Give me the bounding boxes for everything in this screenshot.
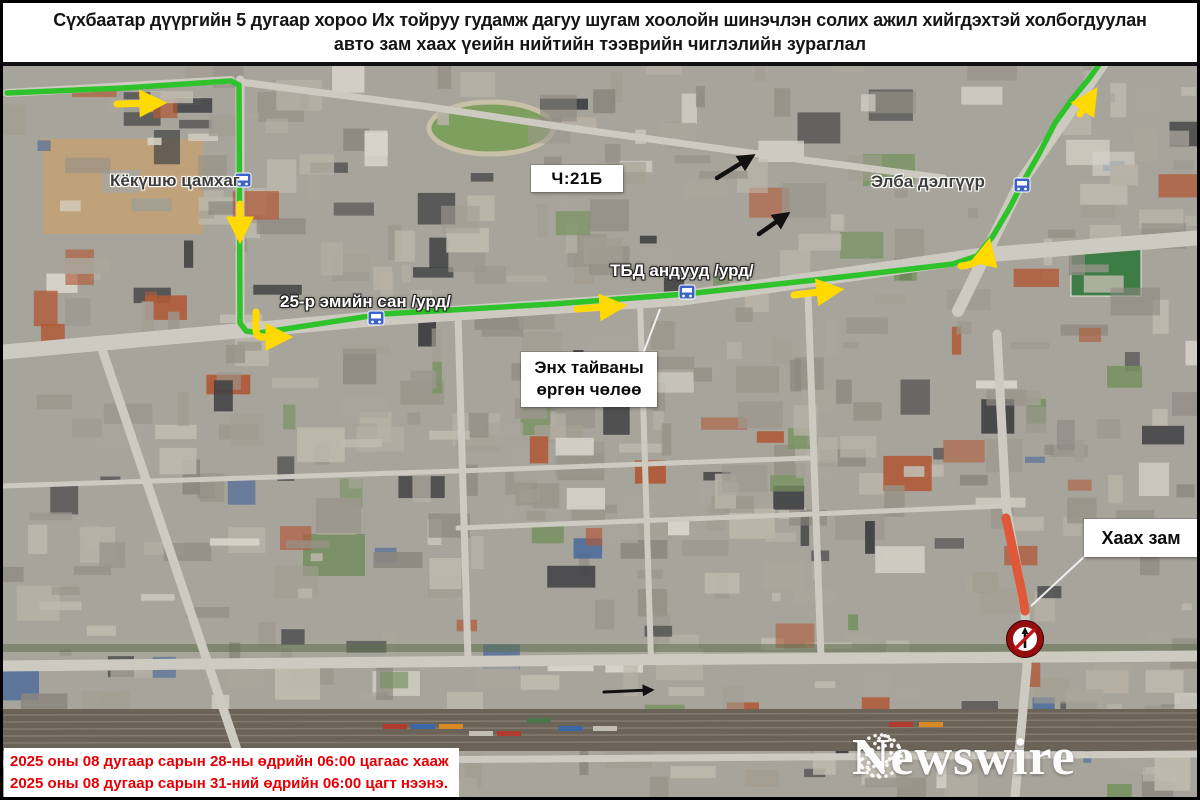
black-arrow-1 [717, 157, 751, 178]
yellow-arrow-topright [1080, 94, 1093, 114]
closed-road-label-box: Хаах зам [1084, 519, 1197, 557]
bus-stop-icon-pharmacy [368, 311, 384, 325]
street-name-line2: өргөн чөлөө [521, 379, 657, 401]
yellow-arrow-mid [577, 306, 619, 309]
yellow-arrow-topleft [117, 103, 159, 104]
globe-icon [852, 728, 908, 784]
closed-road-segment [1006, 518, 1025, 611]
no-entry-sign-icon [1007, 621, 1043, 657]
street-name-box: Энх тайваны өргөн чөлөө [521, 352, 657, 407]
bus-route-line [7, 66, 1101, 333]
label-stop-tbd: ТБД андууд /урд/ [610, 261, 754, 281]
satellite-map: Кёкүшю цамхаг 25-р эмийн сан /урд/ ТБД а… [3, 66, 1197, 797]
page-title-line1: Сүхбаатар дүүргийн 5 дугаар хороо Их той… [3, 10, 1197, 31]
bus-stop-icon-elba [1014, 178, 1030, 192]
page-title-line2: авто зам хаах үеийн нийтийн тээврийн чиг… [3, 34, 1197, 55]
street-name-line1: Энх тайваны [521, 357, 657, 379]
title-band: Сүхбаатар дүүргийн 5 дугаар хороо Их той… [3, 3, 1197, 66]
notice-line2: 2025 оны 08 дугаар сарын 31-ний өдрийн 0… [10, 773, 449, 795]
yellow-arrow-east [794, 290, 836, 295]
notice-line1: 2025 оны 08 дугаар сарын 28-ны өдрийн 06… [10, 751, 449, 773]
newswire-logo: Newswire [852, 728, 1076, 787]
label-stop-elba: Элба дэлгүүр [871, 172, 985, 192]
label-stop-pharmacy: 25-р эмийн сан /урд/ [280, 292, 451, 312]
notice-box: 2025 оны 08 дугаар сарын 28-ны өдрийн 06… [4, 748, 459, 797]
black-arrows [604, 157, 786, 692]
infographic-frame: Сүхбаатар дүүргийн 5 дугаар хороо Их той… [0, 0, 1200, 800]
label-stop-kokushu: Кёкүшю цамхаг [110, 171, 240, 191]
bus-stop-icon-tbd [679, 285, 695, 299]
black-arrow-3 [604, 690, 651, 692]
black-arrow-2 [759, 215, 786, 234]
route-number-box: Ч:21Б [531, 165, 623, 192]
